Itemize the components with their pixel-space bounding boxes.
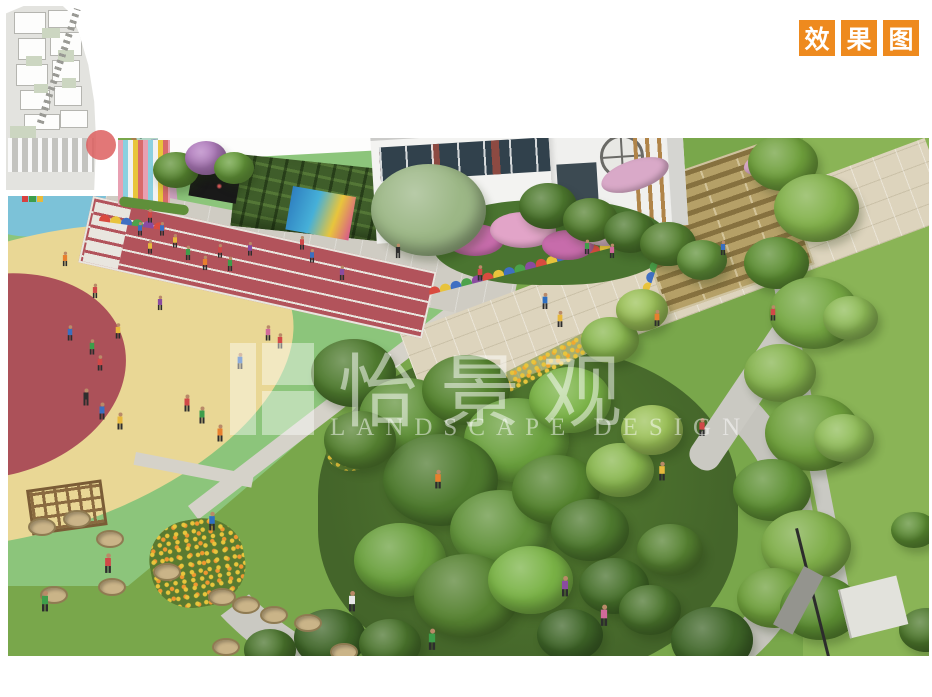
person-figure <box>173 237 177 243</box>
stepping-log <box>63 510 91 528</box>
track-start-zone <box>83 199 132 269</box>
stepping-log <box>212 638 240 656</box>
tree <box>744 344 816 402</box>
person-figure <box>203 259 207 265</box>
rendering-page: 效 果 图 <box>0 0 932 697</box>
person-figure <box>248 245 252 251</box>
person-figure <box>601 610 607 619</box>
badge-char-1: 效 <box>799 20 835 56</box>
person-figure <box>435 474 441 482</box>
stepping-log <box>28 518 56 536</box>
plan-courtyard <box>42 28 60 38</box>
title-badge: 效 果 图 <box>799 20 919 56</box>
person-figure <box>340 269 344 275</box>
tree <box>537 609 603 656</box>
person-figure <box>349 596 355 604</box>
person-figure <box>63 255 67 261</box>
person-figure <box>429 634 435 643</box>
tree <box>677 240 727 280</box>
tree <box>551 499 629 561</box>
person-figure <box>771 309 776 315</box>
person-figure <box>218 429 223 436</box>
tree <box>621 405 683 455</box>
person-figure <box>200 411 205 418</box>
tree <box>637 524 703 577</box>
tree <box>214 152 254 184</box>
person-figure <box>100 407 105 414</box>
badge-char-2: 果 <box>841 20 877 56</box>
badge-char-3: 图 <box>883 20 919 56</box>
person-figure <box>68 329 73 335</box>
tree <box>488 546 573 614</box>
person-figure <box>659 466 665 474</box>
stepping-log <box>232 596 260 614</box>
person-figure <box>42 596 48 604</box>
person-figure <box>562 581 568 589</box>
plan-courtyard <box>62 78 76 88</box>
person-figure <box>118 417 123 424</box>
person-figure <box>238 357 243 364</box>
person-figure <box>90 343 95 349</box>
plan-building <box>16 64 48 86</box>
person-figure <box>185 399 190 406</box>
person-figure <box>98 359 103 365</box>
person-figure <box>699 422 704 429</box>
person-figure <box>105 558 111 566</box>
person-figure <box>160 225 164 231</box>
person-figure <box>721 244 725 250</box>
landscape-rendering: 怡景观 LANDSCAPE DESIGN <box>8 138 929 656</box>
person-figure <box>186 249 190 255</box>
stepping-log <box>330 643 358 656</box>
person-figure <box>300 239 304 245</box>
person-figure <box>148 212 152 218</box>
stepping-log <box>294 614 322 632</box>
person-figure <box>610 247 614 253</box>
person-figure <box>278 337 283 343</box>
person-figure <box>585 243 589 249</box>
person-figure <box>266 329 271 335</box>
person-figure <box>148 243 152 249</box>
person-figure <box>478 269 483 275</box>
tree <box>619 585 681 635</box>
person-figure <box>396 247 400 253</box>
tree <box>774 174 859 242</box>
person-figure <box>158 299 162 305</box>
person-figure <box>93 287 97 293</box>
view-location-marker <box>86 130 116 160</box>
site-plan-inset <box>0 0 118 196</box>
plan-building <box>60 110 88 128</box>
person-figure <box>138 225 142 231</box>
person-figure <box>543 297 548 304</box>
person-figure <box>209 516 215 524</box>
plan-building <box>54 86 82 106</box>
person-figure <box>218 247 222 253</box>
person-figure <box>558 315 563 322</box>
person-figure <box>655 314 660 321</box>
person-figure <box>84 393 89 400</box>
tree <box>823 296 878 340</box>
person-figure <box>310 252 314 258</box>
stepping-log <box>260 606 288 624</box>
tree <box>616 289 668 331</box>
stepping-log <box>96 530 124 548</box>
person-figure <box>116 327 121 333</box>
person-figure <box>228 260 232 266</box>
stepping-log <box>98 578 126 596</box>
site-plan-south-band <box>8 138 94 172</box>
stepping-log <box>153 563 181 581</box>
plan-courtyard <box>26 56 42 66</box>
tree <box>529 367 611 433</box>
tree <box>371 164 486 256</box>
tree <box>324 411 396 469</box>
tree <box>814 414 874 462</box>
